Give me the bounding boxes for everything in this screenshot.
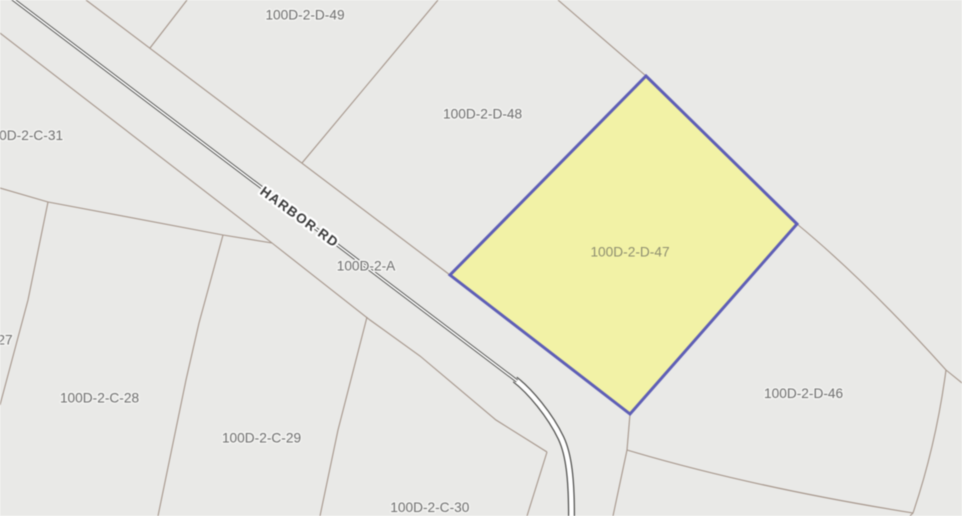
svg-text:100D-2-C-31: 100D-2-C-31: [0, 128, 63, 143]
svg-text:100D-2-D-49: 100D-2-D-49: [265, 8, 344, 23]
svg-text:100D-2-C-28: 100D-2-C-28: [60, 390, 140, 405]
svg-text:100D-2-C-29: 100D-2-C-29: [222, 430, 301, 445]
svg-text:100D-2-C-30: 100D-2-C-30: [390, 500, 470, 515]
svg-text:100D-2-A: 100D-2-A: [337, 259, 396, 274]
svg-text:100D-2-C-27: 100D-2-C-27: [0, 332, 13, 347]
svg-text:100D-2-D-48: 100D-2-D-48: [443, 106, 523, 121]
svg-text:100D-2-D-47: 100D-2-D-47: [590, 244, 669, 259]
svg-text:100D-2-D-46: 100D-2-D-46: [764, 386, 844, 401]
